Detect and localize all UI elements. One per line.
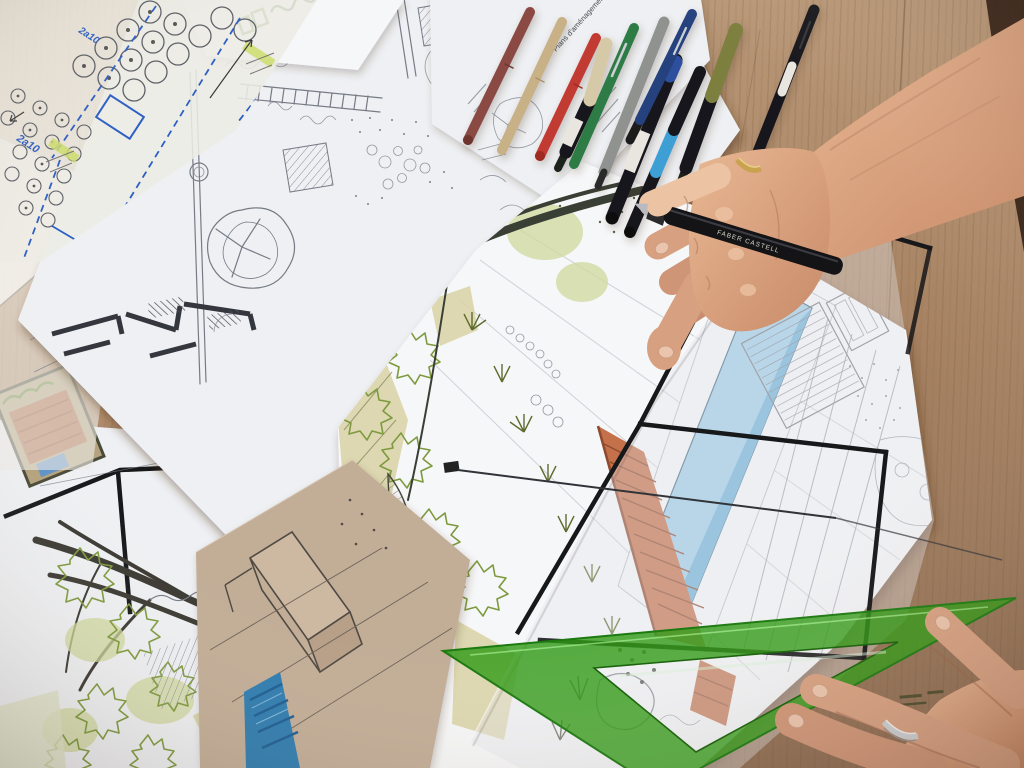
photo-vignette [0,0,1024,768]
photo-landscape-design-desk: 2a10 2a10 Plans d'aménagement [0,0,1024,768]
scene-canvas: 2a10 2a10 Plans d'aménagement [0,0,1024,768]
